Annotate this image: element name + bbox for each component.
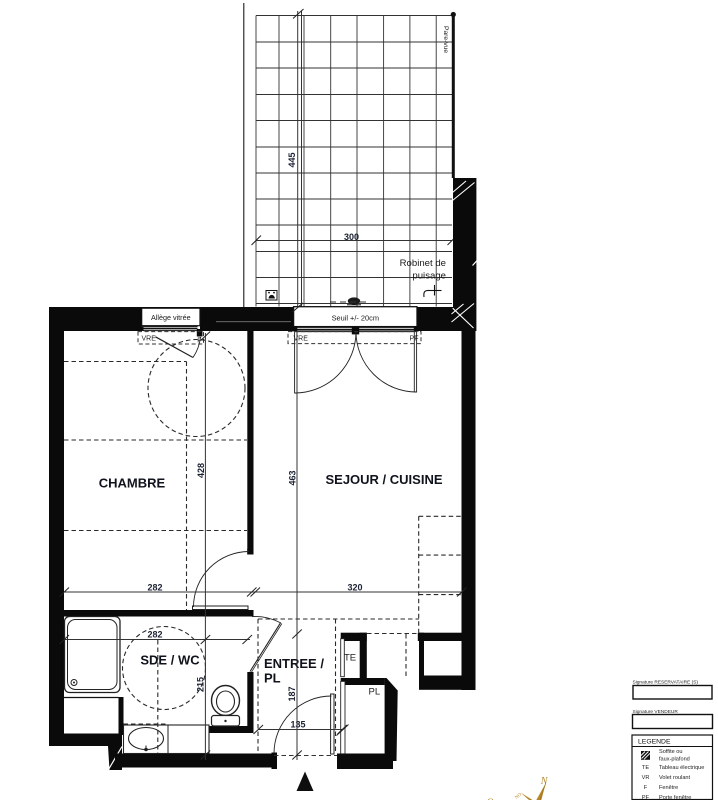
svg-text:Robinet de: Robinet de (400, 258, 446, 269)
svg-text:445: 445 (287, 152, 297, 167)
svg-text:LEGENDE: LEGENDE (638, 739, 671, 746)
svg-text:F: F (644, 785, 648, 791)
svg-text:faux-plafond: faux-plafond (659, 757, 690, 763)
svg-text:215: 215 (195, 677, 205, 692)
svg-text:282: 282 (147, 630, 162, 640)
svg-text:SEJOUR / CUISINE: SEJOUR / CUISINE (325, 472, 442, 487)
svg-text:Fenêtre: Fenêtre (659, 785, 678, 791)
svg-text:PL: PL (369, 687, 381, 698)
svg-text:300: 300 (344, 232, 359, 242)
svg-text:Porte fenêtre: Porte fenêtre (659, 795, 691, 800)
svg-text:282: 282 (147, 583, 162, 593)
svg-text:Volet roulant: Volet roulant (659, 775, 691, 781)
svg-text:Seuil +/- 20cm: Seuil +/- 20cm (332, 313, 379, 322)
svg-text:PF: PF (642, 795, 650, 800)
svg-text:428: 428 (196, 463, 206, 478)
svg-text:VRE: VRE (294, 336, 309, 343)
svg-text:Pare-vue: Pare-vue (442, 26, 449, 53)
svg-text:187: 187 (287, 686, 297, 701)
svg-text:Signature RESERVATAIRE (S): Signature RESERVATAIRE (S) (633, 680, 699, 686)
svg-text:TE: TE (344, 653, 356, 664)
svg-text:VRE: VRE (142, 336, 157, 343)
svg-text:135: 135 (290, 720, 305, 730)
svg-text:PF: PF (410, 336, 419, 343)
svg-text:PL: PL (264, 671, 281, 686)
svg-text:ENTREE /: ENTREE / (264, 656, 324, 671)
svg-text:Tableau électrique: Tableau électrique (659, 765, 704, 771)
svg-text:SDE / WC: SDE / WC (140, 653, 200, 668)
svg-text:463: 463 (287, 470, 297, 485)
svg-text:CHAMBRE: CHAMBRE (99, 476, 166, 491)
svg-text:Soffite ou: Soffite ou (659, 749, 683, 755)
svg-text:puisage: puisage (412, 271, 446, 282)
svg-text:Allège vitrée: Allège vitrée (151, 313, 191, 322)
svg-text:VR: VR (642, 775, 650, 781)
svg-text:320: 320 (347, 583, 362, 593)
svg-text:N: N (540, 776, 549, 787)
svg-text:TE: TE (642, 765, 649, 771)
